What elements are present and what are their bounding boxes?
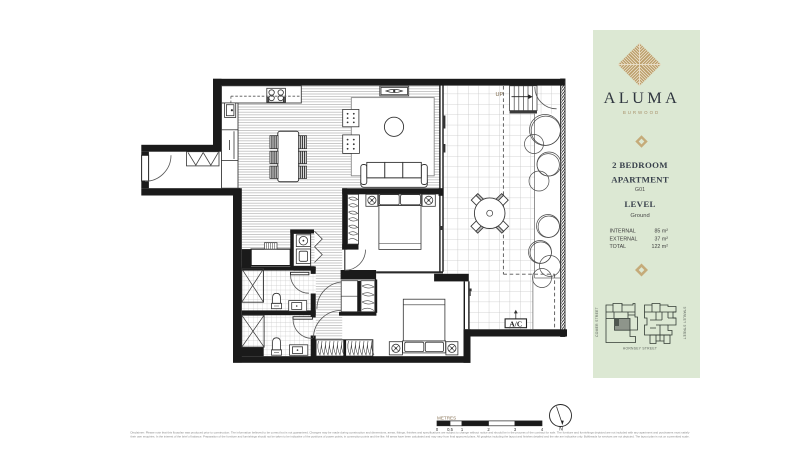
svg-text:STANLEY STREET: STANLEY STREET [683,307,687,340]
svg-text:APARTMENT: APARTMENT [611,175,669,185]
svg-text:INTERNAL: INTERNAL [610,229,636,235]
svg-text:UP: UP [496,92,504,98]
svg-text:A/C: A/C [509,319,522,328]
svg-text:HORNSEY STREET: HORNSEY STREET [623,346,657,350]
svg-text:their own enquiries. In the in: their own enquiries. In the interest of … [131,435,690,439]
svg-text:BURWOOD: BURWOOD [623,110,660,115]
svg-text:METRES: METRES [437,415,456,420]
svg-text:TOTAL: TOTAL [610,244,627,250]
svg-text:Ground: Ground [630,213,649,219]
svg-text:COMER STREET: COMER STREET [595,307,599,337]
svg-text:ALUMA: ALUMA [604,88,681,107]
svg-text:G01: G01 [635,187,645,193]
svg-text:37 m²: 37 m² [654,236,668,242]
svg-text:LEVEL: LEVEL [624,199,655,209]
svg-text:85 m²: 85 m² [654,229,668,235]
svg-text:122 m²: 122 m² [652,244,669,250]
svg-text:EXTERNAL: EXTERNAL [610,236,638,242]
svg-text:2 BEDROOM: 2 BEDROOM [612,160,668,170]
